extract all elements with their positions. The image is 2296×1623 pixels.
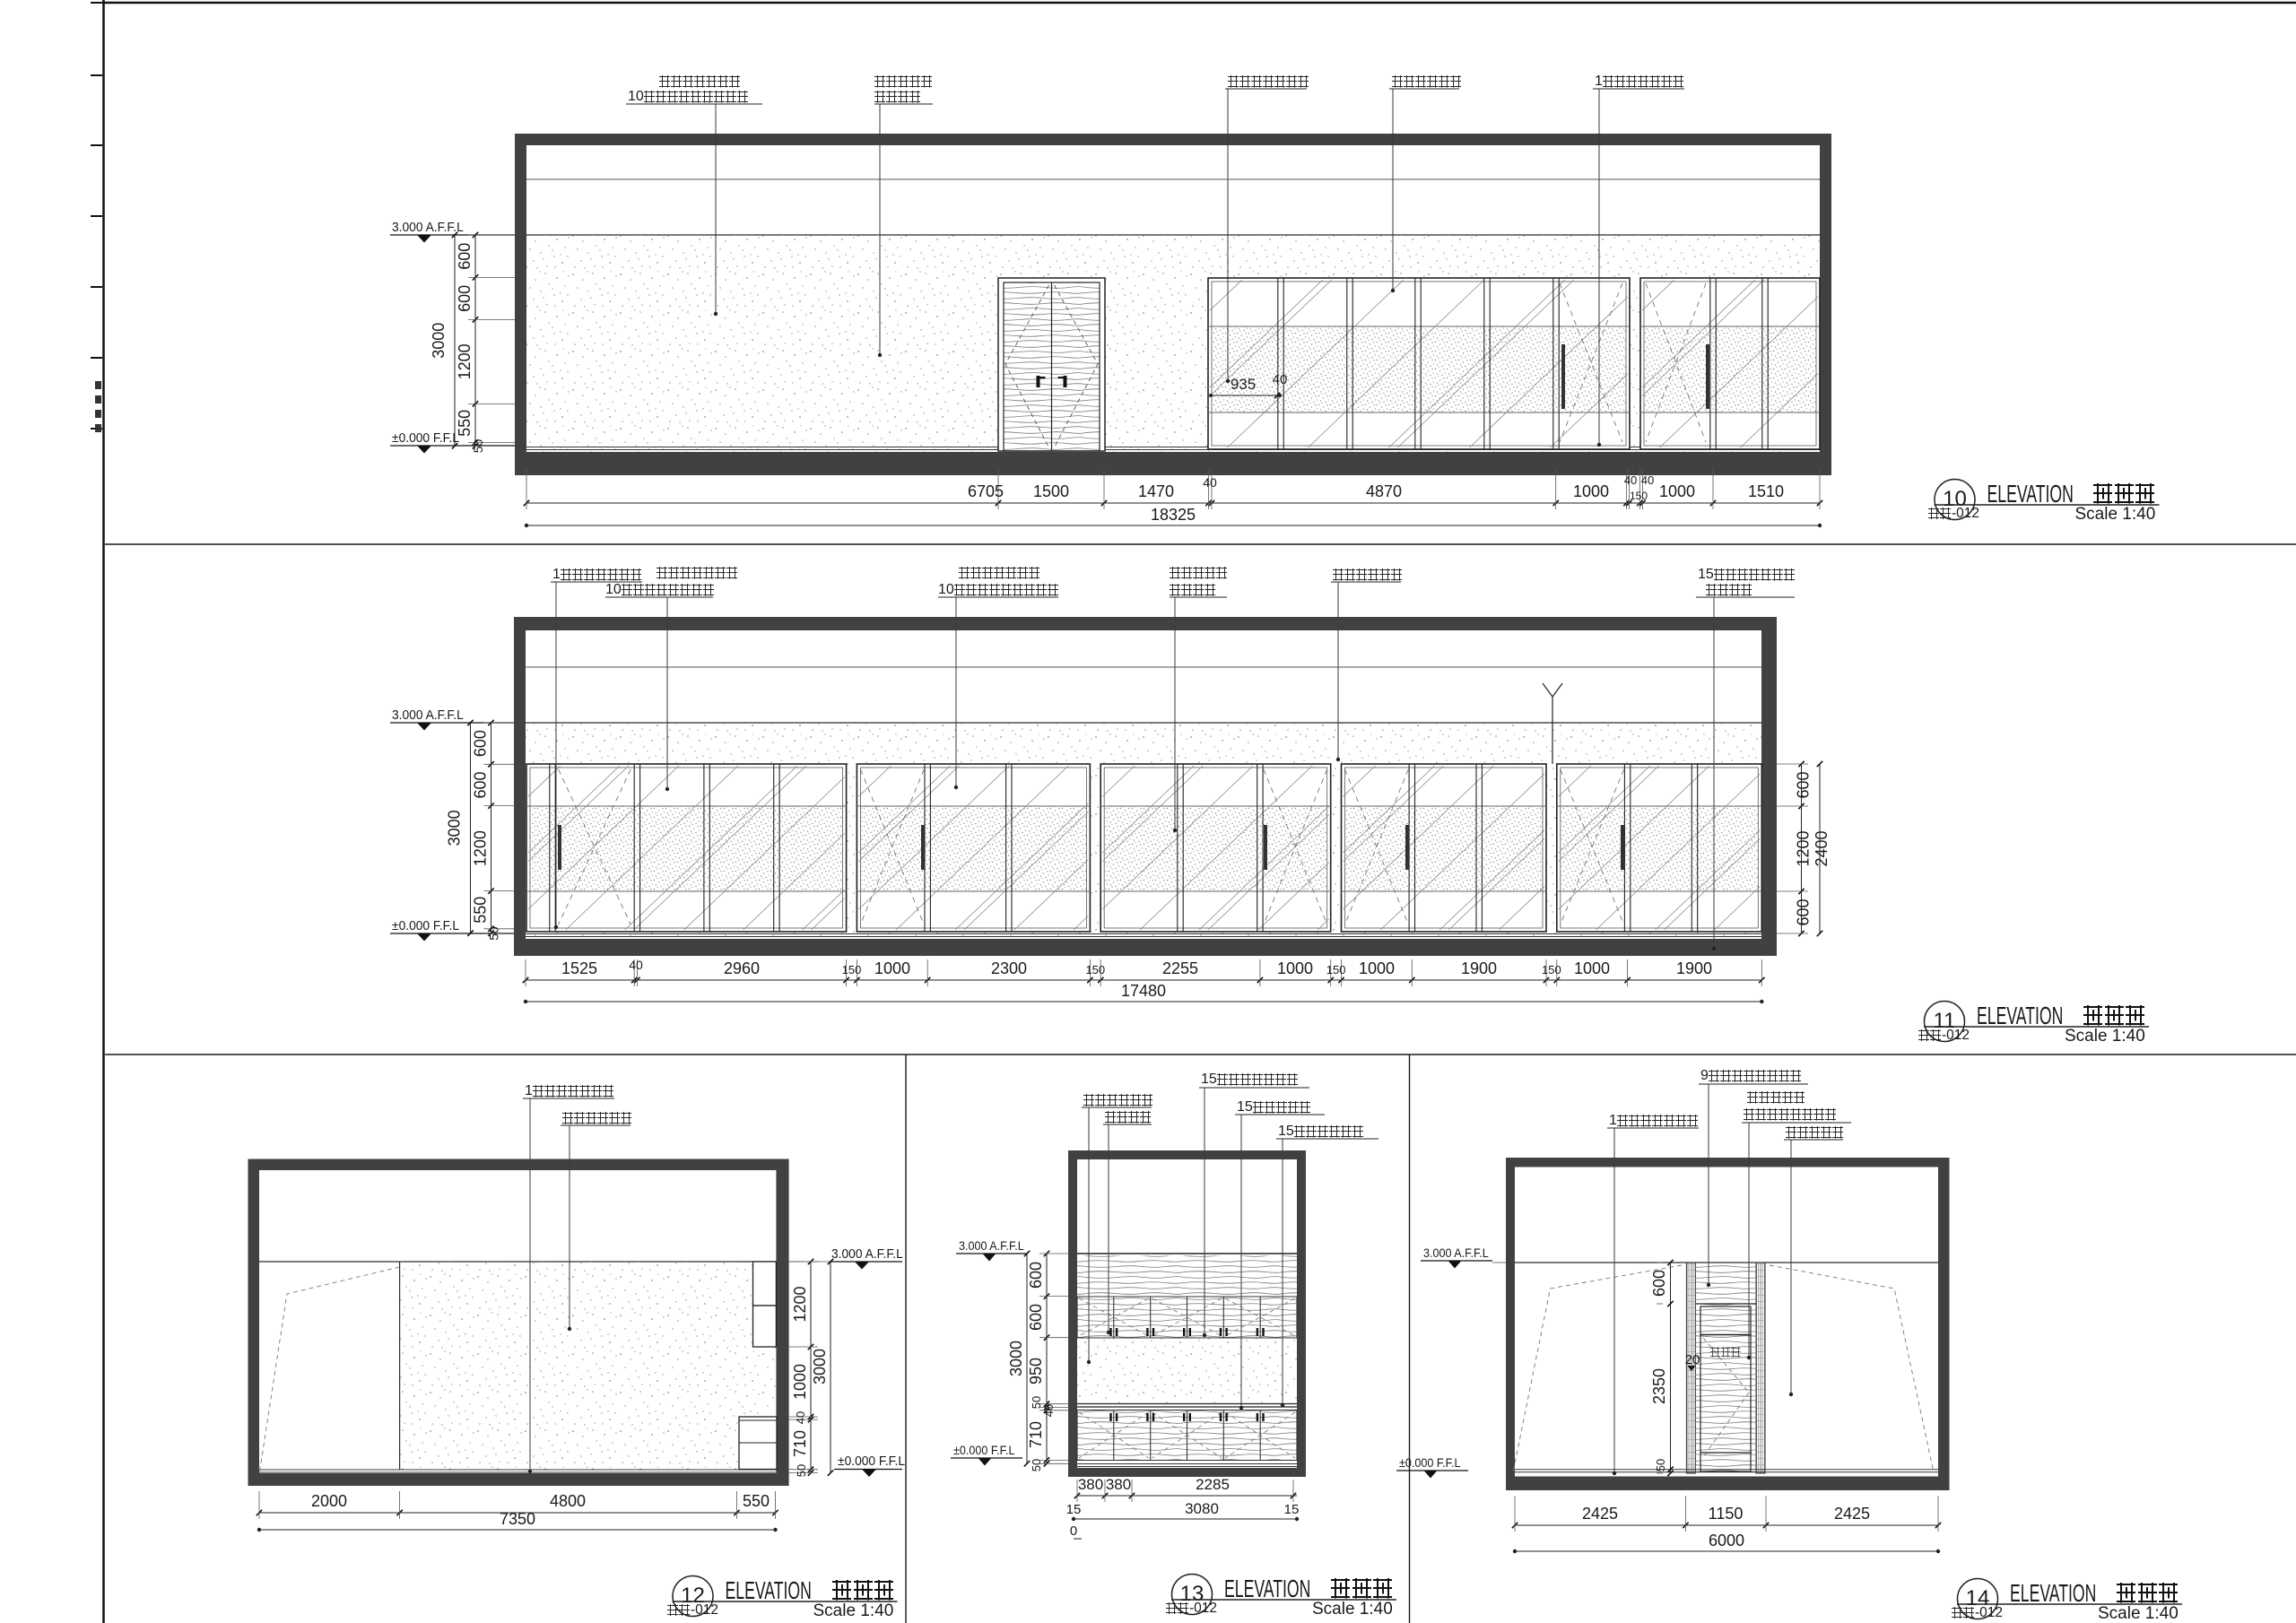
svg-text:2000: 2000	[311, 1492, 347, 1510]
svg-text:6705: 6705	[968, 482, 1004, 500]
svg-text:ELEVATION: ELEVATION	[726, 1576, 812, 1604]
svg-text:ELEVATION: ELEVATION	[1977, 1002, 2063, 1029]
svg-text:710: 710	[1027, 1421, 1045, 1448]
svg-text:50: 50	[795, 1464, 808, 1477]
svg-text:2285: 2285	[1196, 1476, 1230, 1493]
svg-text:1000: 1000	[1573, 482, 1609, 500]
svg-text:600: 600	[472, 730, 490, 757]
svg-text:1470: 1470	[1138, 482, 1174, 500]
svg-text:40: 40	[1042, 1404, 1056, 1417]
svg-text:50: 50	[487, 926, 501, 941]
svg-text:3.000 A.F.F.L: 3.000 A.F.F.L	[392, 221, 464, 236]
svg-text:1900: 1900	[1676, 959, 1712, 977]
svg-text:40: 40	[1641, 473, 1654, 487]
svg-text:935: 935	[1231, 376, 1256, 393]
svg-text:40: 40	[1624, 473, 1637, 487]
svg-text:1000: 1000	[1277, 959, 1313, 977]
svg-text:2400: 2400	[1813, 830, 1831, 866]
svg-text:Scale 1:40: Scale 1:40	[813, 1601, 894, 1620]
svg-text:1500: 1500	[1033, 482, 1069, 500]
svg-text:50: 50	[1030, 1396, 1043, 1409]
svg-text:6000: 6000	[1709, 1532, 1744, 1549]
svg-text:150: 150	[1326, 963, 1346, 976]
svg-text:2300: 2300	[991, 959, 1027, 977]
svg-text:3000: 3000	[1007, 1341, 1025, 1376]
svg-text:550: 550	[743, 1492, 770, 1510]
svg-text:2960: 2960	[724, 959, 760, 977]
svg-text:3000: 3000	[430, 323, 448, 359]
svg-text:50: 50	[1654, 1459, 1667, 1471]
svg-text:600: 600	[1795, 771, 1813, 798]
svg-text:40: 40	[794, 1411, 807, 1424]
svg-text:150: 150	[1085, 963, 1105, 976]
svg-text:1000: 1000	[874, 959, 910, 977]
svg-text:600: 600	[1650, 1270, 1668, 1297]
svg-text:550: 550	[456, 410, 474, 437]
svg-text:380: 380	[1106, 1476, 1131, 1493]
svg-text:40: 40	[629, 958, 643, 972]
svg-text:2255: 2255	[1162, 959, 1198, 977]
svg-text:3080: 3080	[1185, 1500, 1219, 1517]
svg-text:1510: 1510	[1748, 482, 1784, 500]
svg-text:150: 150	[1630, 490, 1648, 502]
svg-text:1200: 1200	[472, 830, 490, 866]
svg-text:±0.000 F.F.L: ±0.000 F.F.L	[392, 919, 459, 934]
svg-text:3.000 A.F.F.L: 3.000 A.F.F.L	[831, 1247, 903, 1263]
svg-text:1000: 1000	[1659, 482, 1695, 500]
svg-text:1000: 1000	[791, 1364, 809, 1400]
svg-text:ELEVATION: ELEVATION	[1224, 1575, 1310, 1602]
svg-text:ELEVATION: ELEVATION	[2010, 1579, 2096, 1607]
svg-text:1000: 1000	[1574, 959, 1610, 977]
svg-text:2350: 2350	[1650, 1368, 1668, 1404]
svg-text:ELEVATION: ELEVATION	[1987, 480, 2074, 508]
svg-text:600: 600	[1027, 1262, 1045, 1289]
svg-text:2425: 2425	[1582, 1505, 1618, 1523]
svg-text:710: 710	[791, 1430, 809, 1457]
svg-text:Scale 1:40: Scale 1:40	[2075, 505, 2156, 524]
svg-text:950: 950	[1027, 1358, 1045, 1384]
svg-text:Scale 1:40: Scale 1:40	[2098, 1604, 2179, 1623]
svg-text:±0.000 F.F.L: ±0.000 F.F.L	[953, 1443, 1014, 1457]
svg-text:40: 40	[1273, 372, 1288, 387]
svg-text:7350: 7350	[500, 1510, 535, 1528]
svg-text:600: 600	[472, 771, 490, 798]
svg-text:2425: 2425	[1834, 1505, 1870, 1523]
svg-text:17480: 17480	[1121, 982, 1166, 1000]
svg-text:50: 50	[1030, 1459, 1043, 1471]
svg-text:1525: 1525	[561, 959, 597, 977]
svg-text:20: 20	[1685, 1352, 1700, 1367]
svg-text:600: 600	[456, 243, 474, 270]
svg-text:1200: 1200	[1795, 830, 1813, 866]
svg-text:Scale 1:40: Scale 1:40	[1312, 1600, 1393, 1619]
svg-text:40: 40	[1203, 475, 1217, 490]
svg-text:3.000 A.F.F.L: 3.000 A.F.F.L	[959, 1238, 1024, 1253]
svg-text:1200: 1200	[456, 343, 474, 379]
svg-text:600: 600	[456, 285, 474, 312]
svg-text:15: 15	[1066, 1502, 1082, 1517]
svg-text:1200: 1200	[791, 1286, 809, 1322]
svg-text:150: 150	[1542, 963, 1561, 976]
svg-text:4800: 4800	[550, 1492, 586, 1510]
svg-text:±0.000 F.F.L: ±0.000 F.F.L	[1399, 1455, 1460, 1470]
svg-text:18325: 18325	[1151, 506, 1196, 524]
svg-text:50: 50	[471, 439, 485, 454]
svg-text:380: 380	[1078, 1476, 1103, 1493]
svg-text:150: 150	[842, 963, 862, 976]
svg-text:±0.000 F.F.L: ±0.000 F.F.L	[392, 431, 459, 447]
svg-text:550: 550	[472, 897, 490, 924]
svg-text:1000: 1000	[1359, 959, 1395, 977]
svg-text:3.000 A.F.F.L: 3.000 A.F.F.L	[392, 708, 464, 724]
svg-text:600: 600	[1795, 898, 1813, 925]
svg-text:0: 0	[1070, 1523, 1077, 1539]
svg-text:3000: 3000	[811, 1349, 829, 1384]
svg-text:15: 15	[1284, 1502, 1300, 1517]
svg-text:600: 600	[1027, 1304, 1045, 1331]
svg-text:1900: 1900	[1461, 959, 1497, 977]
svg-text:4870: 4870	[1366, 482, 1402, 500]
svg-text:3.000 A.F.F.L: 3.000 A.F.F.L	[1423, 1245, 1489, 1260]
svg-text:1150: 1150	[1709, 1505, 1744, 1523]
svg-text:±0.000 F.F.L: ±0.000 F.F.L	[838, 1454, 905, 1470]
svg-text:Scale 1:40: Scale 1:40	[2065, 1027, 2145, 1046]
svg-text:3000: 3000	[446, 810, 464, 846]
